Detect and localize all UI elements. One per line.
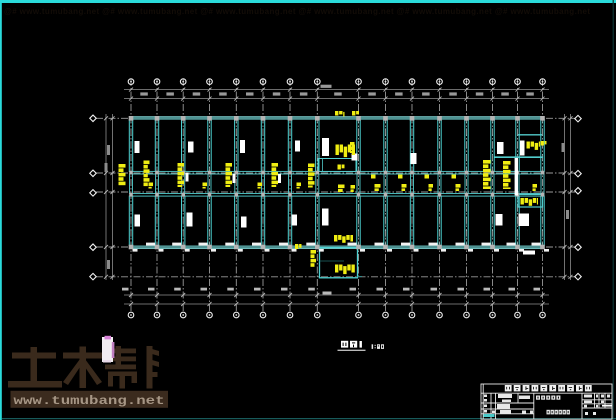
- svg-text:@# www.tumubang.net @# www.tum: @# www.tumubang.net @# www.tumubang.net …: [4, 7, 590, 16]
- svg-text:www.tumubang.net: www.tumubang.net: [14, 394, 165, 408]
